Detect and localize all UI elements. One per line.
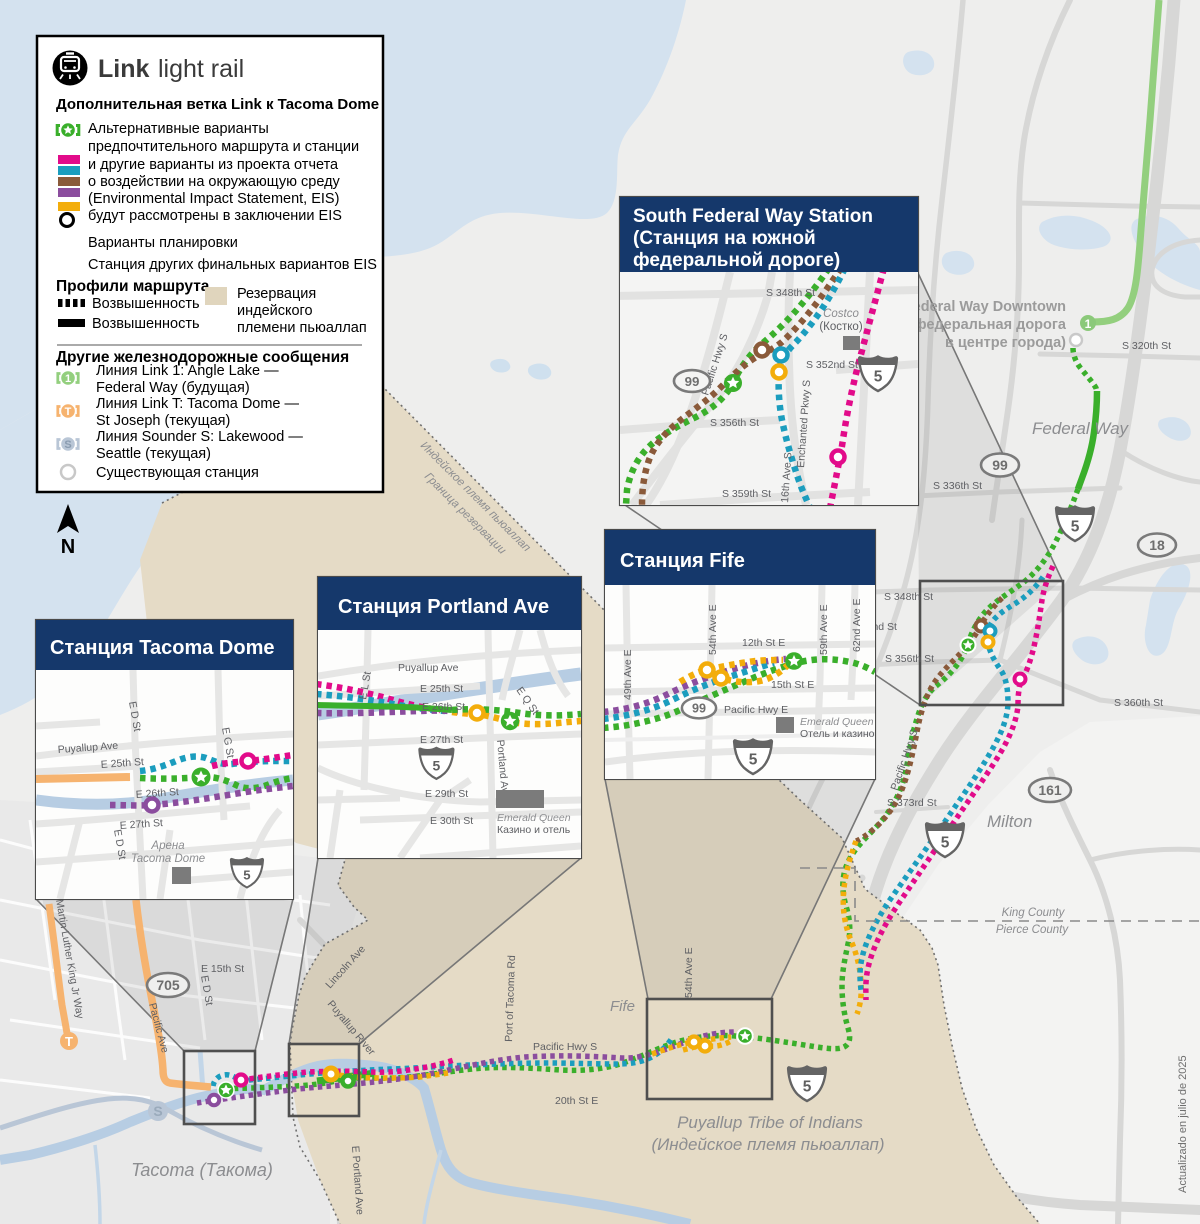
svg-text:Federal Way: Federal Way (1032, 419, 1130, 438)
svg-text:племени пьюаллап: племени пьюаллап (237, 320, 367, 336)
svg-text:99: 99 (685, 374, 700, 389)
svg-text:Казино и отель: Казино и отель (497, 824, 571, 836)
svg-text:12th St E: 12th St E (742, 637, 785, 649)
svg-text:Emerald Queen: Emerald Queen (497, 812, 571, 824)
svg-text:Federal Way Downtown: Federal Way Downtown (904, 299, 1066, 315)
svg-text:Станция Portland Ave: Станция Portland Ave (338, 596, 549, 618)
svg-text:St Joseph (текущая): St Joseph (текущая) (96, 413, 230, 429)
svg-text:S 320th St: S 320th St (1122, 340, 1171, 352)
svg-text:T: T (65, 1034, 73, 1049)
svg-text:индейского: индейского (237, 303, 313, 319)
svg-text:S 348th St: S 348th St (766, 287, 815, 299)
svg-text:Seattle (текущая): Seattle (текущая) (96, 446, 211, 462)
svg-text:о воздействии на окружающую ср: о воздействии на окружающую среду (88, 174, 341, 190)
svg-text:E 26th St: E 26th St (422, 701, 465, 713)
svg-text:Actualizado en julio de 2025: Actualizado en julio de 2025 (1177, 1055, 1189, 1193)
svg-text:Costco: Costco (823, 308, 859, 320)
svg-text:Возвышенность: Возвышенность (92, 316, 200, 332)
svg-text:light rail: light rail (158, 55, 244, 83)
svg-text:King County: King County (1002, 907, 1066, 919)
svg-text:федеральной дороге): федеральной дороге) (633, 250, 840, 271)
svg-text:(Индейское племя пьюаллап): (Индейское племя пьюаллап) (651, 1135, 884, 1154)
svg-text:S: S (64, 439, 71, 451)
svg-text:Puyallup Tribe of Indians: Puyallup Tribe of Indians (677, 1113, 863, 1132)
svg-text:Линия Sounder S: Lakewood —: Линия Sounder S: Lakewood — (96, 429, 303, 445)
svg-text:Варианты планировки: Варианты планировки (88, 235, 238, 251)
svg-text:1: 1 (1085, 317, 1092, 331)
svg-text:S 352nd St: S 352nd St (806, 359, 858, 371)
svg-text:Tacoma (Такома): Tacoma (Такома) (131, 1160, 273, 1180)
svg-text:S 373rd St: S 373rd St (887, 797, 937, 809)
svg-text:Puyallup Ave: Puyallup Ave (398, 662, 459, 674)
svg-text:15th St E: 15th St E (771, 679, 814, 691)
svg-text:49th Ave E: 49th Ave E (622, 649, 634, 700)
svg-text:будут рассмотрены в заключении: будут рассмотрены в заключении EIS (88, 208, 342, 224)
svg-text:Арена: Арена (150, 840, 184, 852)
svg-text:Pierce County: Pierce County (996, 924, 1069, 936)
svg-text:E 30th St: E 30th St (430, 815, 473, 827)
svg-text:54th Ave E: 54th Ave E (683, 947, 695, 998)
svg-text:18: 18 (1149, 537, 1165, 553)
svg-text:Станция Tacoma Dome: Станция Tacoma Dome (50, 637, 274, 659)
svg-text:161: 161 (1038, 782, 1062, 798)
svg-text:Tacoma Dome: Tacoma Dome (131, 853, 205, 865)
svg-text:Существующая станция: Существующая станция (96, 465, 259, 481)
svg-text:(Environmental Impact Statemen: (Environmental Impact Statement, EIS) (88, 191, 339, 207)
svg-text:Pacific Hwy S: Pacific Hwy S (533, 1041, 597, 1053)
svg-text:(федеральная дорога: (федеральная дорога (909, 317, 1067, 333)
svg-text:E 25th St: E 25th St (420, 683, 463, 695)
svg-text:T: T (65, 406, 72, 418)
svg-text:705: 705 (156, 977, 180, 993)
svg-text:S 356th St: S 356th St (710, 417, 759, 429)
svg-text:в центре города): в центре города) (945, 335, 1066, 351)
svg-text:Milton: Milton (987, 812, 1032, 831)
svg-text:62nd Ave E: 62nd Ave E (851, 598, 863, 652)
svg-text:Отель и казино: Отель и казино (800, 728, 875, 740)
svg-text:Дополнительная ветка Link к Ta: Дополнительная ветка Link к Tacoma Dome (56, 96, 379, 113)
svg-text:Резервация: Резервация (237, 286, 316, 302)
svg-text:и другие варианты из проекта о: и другие варианты из проекта отчета (88, 157, 339, 173)
svg-text:Станция других финальных вариа: Станция других финальных вариантов EIS (88, 257, 377, 273)
svg-text:S 356th St: S 356th St (885, 653, 934, 665)
svg-text:E 27th St: E 27th St (420, 734, 463, 746)
svg-text:E 15th St: E 15th St (201, 963, 244, 975)
svg-text:Станция Fife: Станция Fife (620, 550, 745, 572)
svg-text:(Станция на южной: (Станция на южной (633, 228, 816, 249)
svg-text:Линия Link 1: Angle Lake —: Линия Link 1: Angle Lake — (96, 363, 279, 379)
svg-text:S 359th St: S 359th St (722, 488, 771, 500)
svg-text:предпочтительного маршрута и с: предпочтительного маршрута и станции (88, 139, 359, 155)
svg-text:S 360th St: S 360th St (1114, 697, 1163, 709)
svg-text:1: 1 (65, 373, 71, 385)
svg-text:(Костко): (Костко) (819, 321, 862, 333)
svg-text:E 29th St: E 29th St (425, 788, 468, 800)
svg-text:Emerald Queen: Emerald Queen (800, 716, 874, 728)
svg-text:Federal Way (будущая): Federal Way (будущая) (96, 380, 250, 396)
svg-text:Pacific Hwy E: Pacific Hwy E (724, 704, 788, 716)
svg-text:S: S (153, 1103, 162, 1119)
svg-text:99: 99 (692, 702, 706, 716)
svg-text:South Federal Way Station: South Federal Way Station (633, 206, 873, 227)
svg-text:N: N (61, 536, 75, 558)
svg-text:Fife: Fife (610, 998, 635, 1015)
svg-text:Профили маршрута: Профили маршрута (56, 278, 210, 295)
svg-text:Линия Link T: Tacoma Dome —: Линия Link T: Tacoma Dome — (96, 396, 300, 412)
svg-text:Возвышенность: Возвышенность (92, 296, 200, 312)
svg-text:Link: Link (98, 55, 149, 83)
svg-text:Альтернативные варианты: Альтернативные варианты (88, 121, 269, 137)
svg-text:54th Ave E: 54th Ave E (707, 604, 719, 655)
svg-text:59th Ave E: 59th Ave E (818, 604, 830, 655)
svg-text:S 348th St: S 348th St (884, 591, 933, 603)
svg-text:20th St E: 20th St E (555, 1095, 598, 1107)
svg-text:S 336th St: S 336th St (933, 480, 982, 492)
